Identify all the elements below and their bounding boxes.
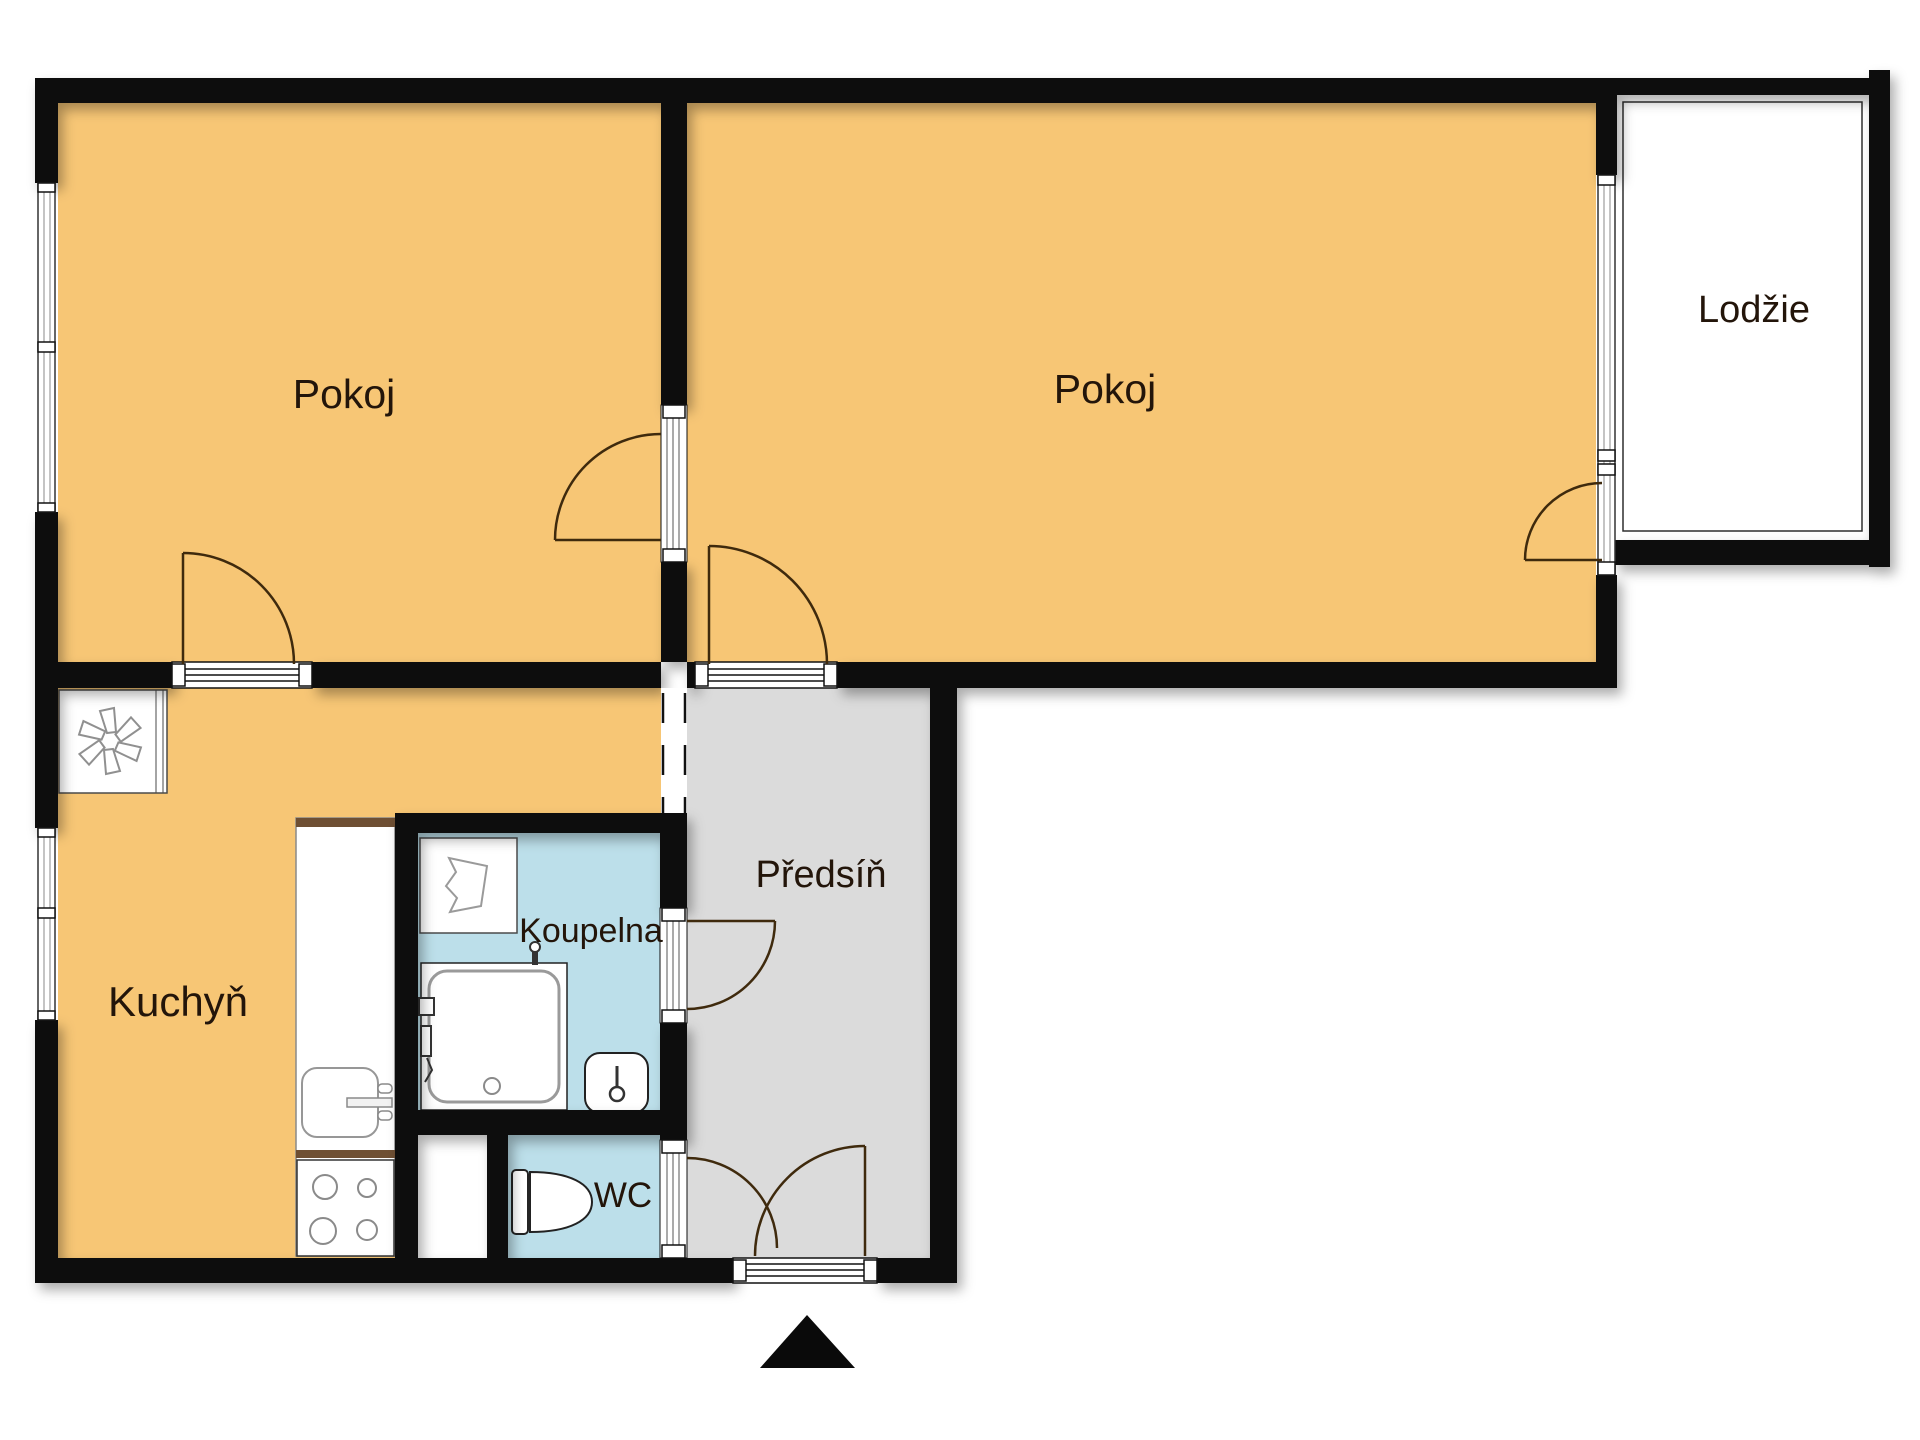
counter-top-band [296,818,395,827]
doorframe-jamb [663,405,685,418]
stove [297,1160,394,1256]
entrance-marker-icon [760,1315,855,1368]
wall-bath-bottom [418,1110,660,1135]
room-floor-predsin [687,688,930,1258]
window-mullion [1598,562,1615,575]
window-pokoj1-left [38,183,55,512]
room-label-wc: WC [594,1176,652,1215]
wall-pokoj-divider-bottom [661,562,687,662]
window-mullion [1598,450,1615,461]
window-mullion [38,183,55,192]
wall-left-top [35,78,58,183]
counter-divider-band [296,1150,395,1158]
wall-bottom-lodzie [1614,540,1869,565]
wall-bottom-west [35,1258,733,1283]
kitchen-counter [296,818,395,1256]
wall-pokoj1-bottom-west [58,662,172,688]
wall-pokoj2-bottom-jamb [687,662,695,688]
doorframe-jamb [662,1010,685,1023]
threshold-jamb [733,1260,746,1281]
threshold-entrance-door [733,1258,877,1283]
window-strip [38,828,55,1020]
room-label-predsin: Předsíň [756,854,887,896]
window-mullion [38,828,55,837]
wall-pokoj2-bottom [837,662,1617,688]
wall-pokoj2-right-upper [1596,92,1617,175]
wall-right-lodzie [1869,70,1890,567]
wall-pokoj1-bottom-east [312,662,661,688]
open-passage-dashed [661,688,687,813]
wall-bath-left [395,833,418,1258]
room-floor-closet [418,1135,487,1258]
threshold-jamb [824,664,837,686]
wall-predsin-right [930,688,957,1258]
room-label-pokoj-2: Pokoj [1054,366,1157,412]
vanity-unit [420,838,517,933]
fan-box [59,690,167,793]
threshold-jamb [695,664,708,686]
window-mullion [38,342,55,352]
washbasin-tap-bulb [610,1087,624,1101]
doorframe [661,405,687,562]
shower-mixer-bar [421,1026,431,1056]
doorframe-jamb [662,1140,685,1153]
shower [419,942,567,1110]
room-label-pokoj-1: Pokoj [293,371,396,417]
stove-body [297,1160,394,1256]
wall-bottom-east [877,1258,957,1283]
shower-mixer-box [419,998,434,1015]
wall-left-mid [35,512,58,828]
wall-closet-wc [487,1135,508,1258]
window-mullion [38,503,55,512]
threshold-jamb [299,664,312,686]
wall-top-lodzie [1617,78,1870,95]
window-balcony-wall [1598,175,1615,575]
wall-left-bottom [35,1020,58,1283]
toilet-cistern [512,1170,528,1234]
room-label-lodzie: Lodžie [1698,289,1810,331]
room-label-koupelna: Koupelna [519,912,663,950]
wall-pokoj-divider-top [661,103,687,405]
window-strip [1598,175,1615,575]
doorframe-wc [660,1140,687,1258]
floorplan-page: Pokoj Pokoj Lodžie Kuchyň Koupelna WC Př… [0,0,1920,1440]
window-mullion [1598,175,1615,185]
sink-tap-bar [347,1098,392,1107]
sink-tap-knob-top [378,1084,392,1093]
doorframe-jamb [662,908,685,921]
wall-hall-divider-lower [660,1023,687,1140]
threshold-jamb [172,664,185,686]
doorframe-pokoj1-pokoj2 [661,405,687,562]
wall-pokoj2-right-lower [1596,575,1617,662]
doorframe-koupelna [660,908,687,1023]
window-kuchyn-left [38,828,55,1020]
room-label-kuchyn: Kuchyň [108,978,248,1025]
threshold-pokoj2-door [695,662,837,688]
threshold-jamb [864,1260,877,1281]
passage-floor [661,688,687,813]
floorplan-svg: Pokoj Pokoj Lodžie Kuchyň Koupelna WC Př… [0,0,1920,1440]
vanity-box [420,838,517,933]
window-mullion [1598,464,1615,475]
fan-unit [59,690,167,793]
shower-drain [484,1078,500,1094]
wall-bath-top [395,813,687,833]
window-mullion [38,908,55,918]
sink-tap-knob-bottom [378,1111,392,1120]
doorframe-jamb [662,1245,685,1258]
doorframe-jamb [663,549,685,562]
washbasin [585,1053,648,1113]
threshold-pokoj1-door [172,662,312,688]
wall-top-main [35,78,1617,103]
window-mullion [38,1011,55,1020]
